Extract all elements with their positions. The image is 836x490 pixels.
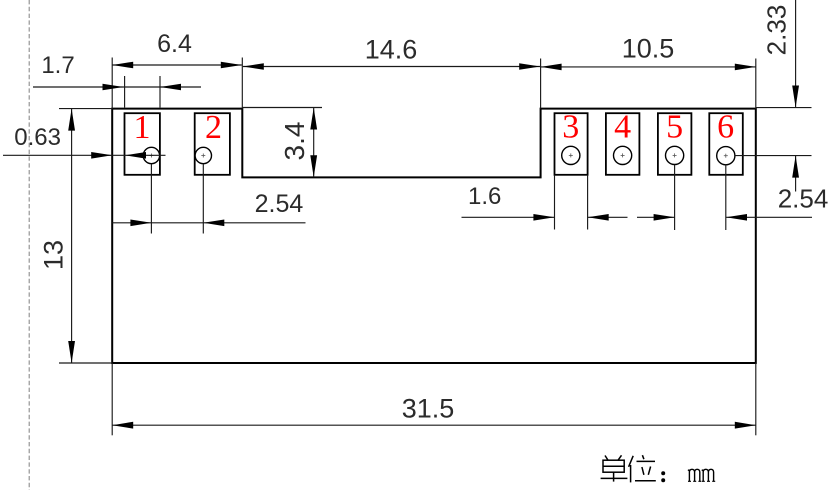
svg-text:10.5: 10.5 bbox=[622, 34, 675, 64]
svg-text:1.6: 1.6 bbox=[468, 183, 501, 210]
svg-text:0.63: 0.63 bbox=[14, 124, 61, 151]
svg-text:1: 1 bbox=[134, 109, 151, 146]
svg-text:6: 6 bbox=[717, 109, 734, 146]
svg-text:6.4: 6.4 bbox=[157, 30, 192, 58]
svg-text:3: 3 bbox=[562, 109, 579, 146]
svg-text:2: 2 bbox=[205, 109, 222, 146]
svg-text:5: 5 bbox=[666, 109, 683, 146]
svg-text:4: 4 bbox=[614, 109, 631, 146]
svg-text:14.6: 14.6 bbox=[365, 35, 418, 65]
svg-text:2.54: 2.54 bbox=[255, 190, 304, 218]
svg-text:13: 13 bbox=[39, 240, 69, 270]
svg-text:1.7: 1.7 bbox=[41, 52, 74, 79]
svg-text:3.4: 3.4 bbox=[279, 122, 310, 161]
svg-text:31.5: 31.5 bbox=[402, 394, 455, 424]
svg-text:2.54: 2.54 bbox=[778, 184, 829, 214]
svg-text:2.33: 2.33 bbox=[762, 5, 792, 56]
